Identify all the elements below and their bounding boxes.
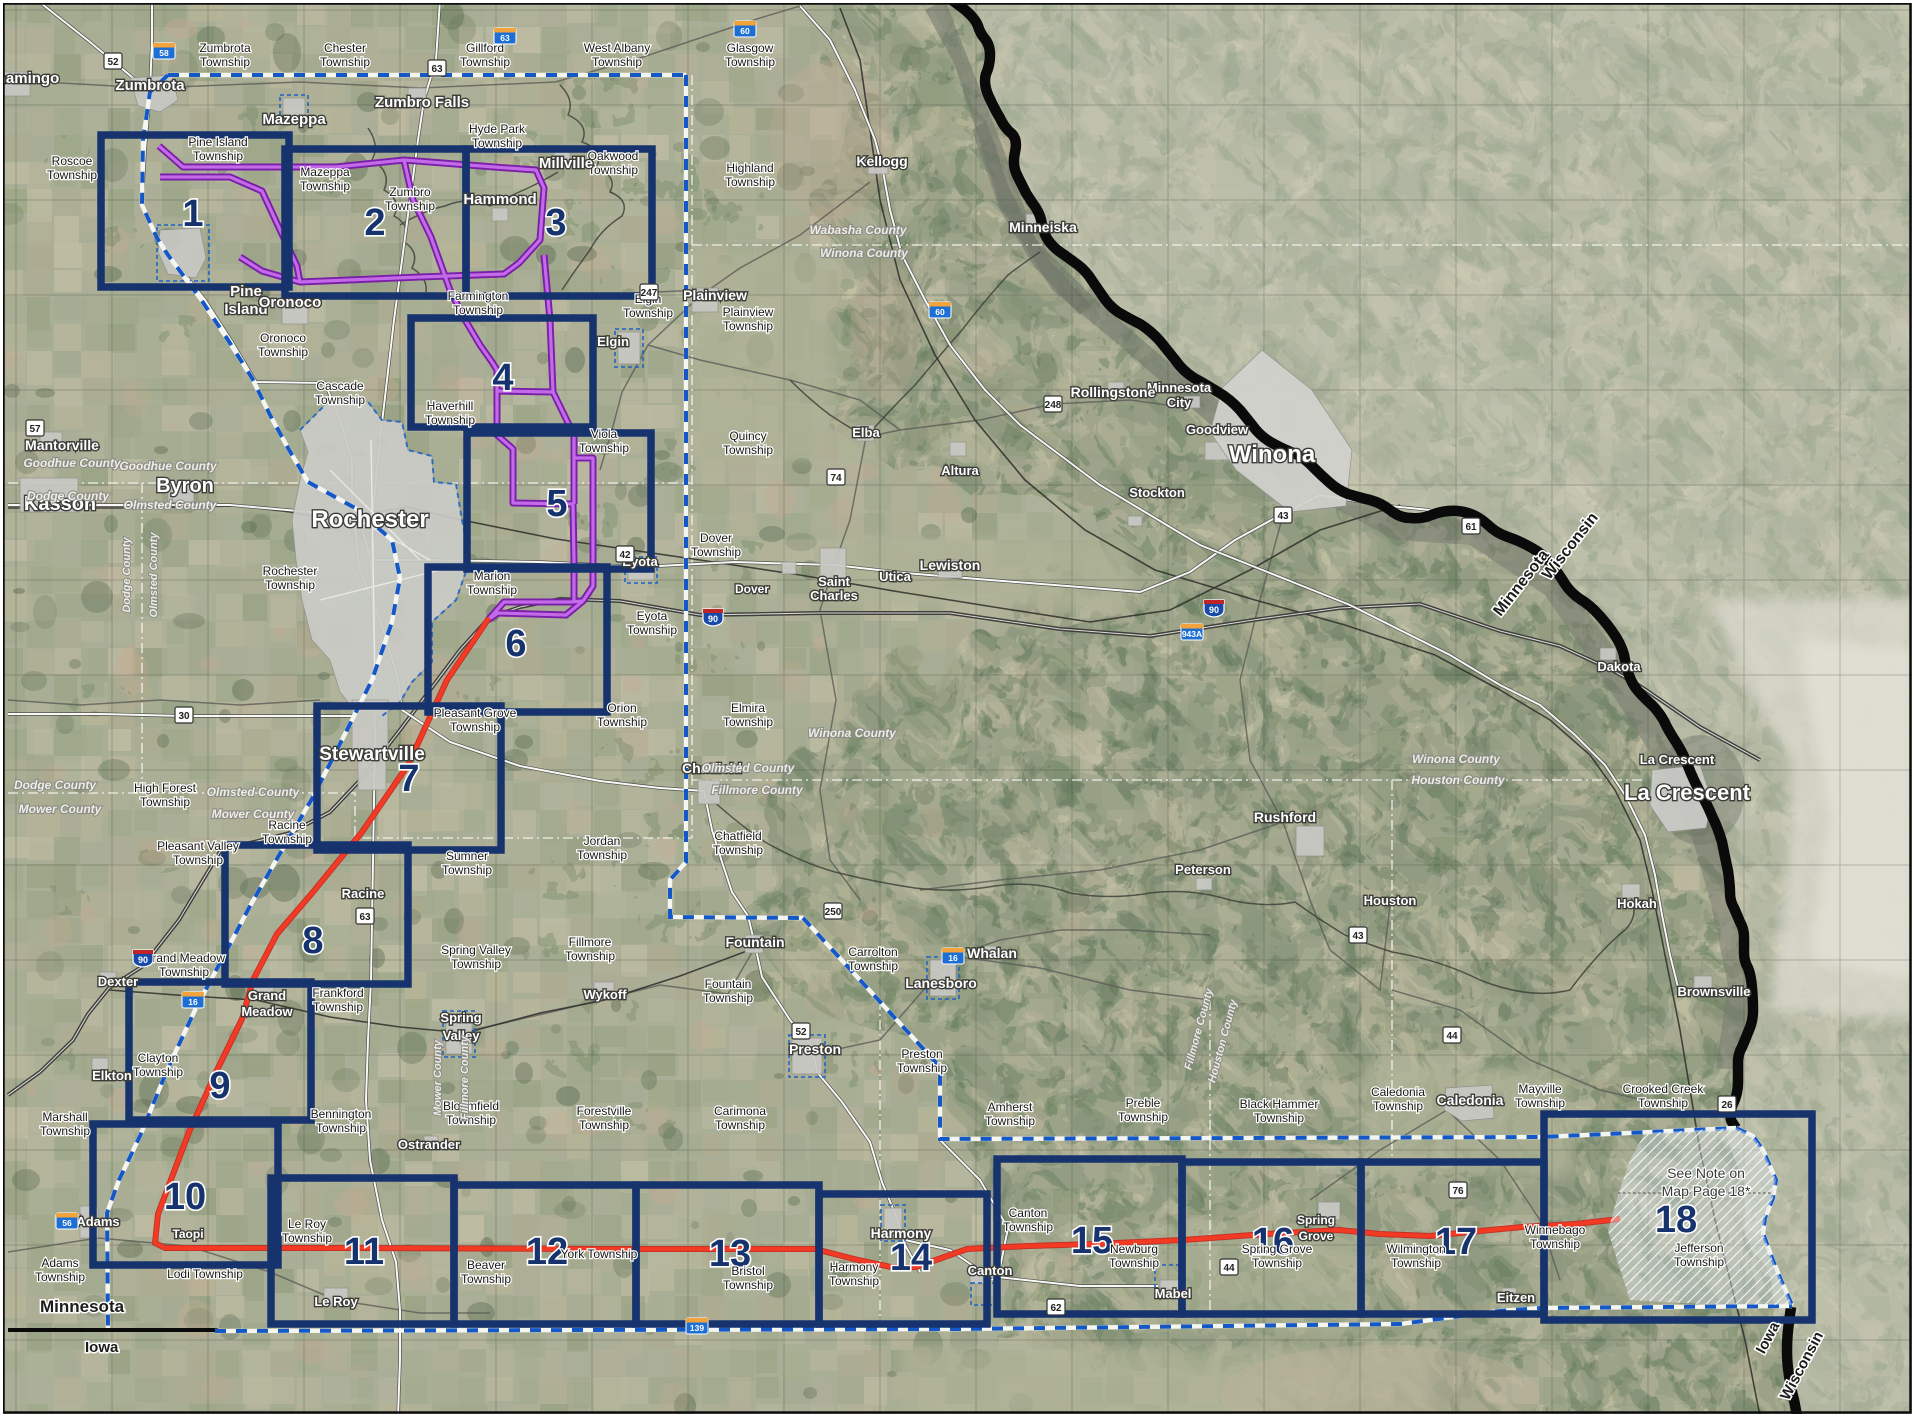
- svg-text:Mantorville: Mantorville: [25, 437, 99, 453]
- svg-text:Township: Township: [579, 441, 629, 455]
- svg-text:Hammond: Hammond: [463, 191, 536, 208]
- svg-text:Grove: Grove: [1299, 1229, 1334, 1243]
- svg-text:Houston County: Houston County: [1411, 773, 1506, 787]
- svg-text:4: 4: [492, 357, 513, 399]
- svg-text:76: 76: [1452, 1186, 1464, 1197]
- svg-text:Charles: Charles: [810, 588, 858, 603]
- svg-text:Township: Township: [1391, 1256, 1441, 1270]
- svg-text:Grand Meadow: Grand Meadow: [143, 951, 225, 965]
- svg-text:Le Roy: Le Roy: [288, 1217, 326, 1231]
- svg-text:74: 74: [830, 473, 842, 484]
- svg-text:Elgin: Elgin: [597, 334, 629, 349]
- svg-text:Mabel: Mabel: [1155, 1286, 1192, 1301]
- svg-text:Winnebago: Winnebago: [1525, 1223, 1586, 1237]
- svg-text:Township: Township: [1003, 1220, 1053, 1234]
- svg-text:Township: Township: [723, 1278, 773, 1292]
- svg-text:Township: Township: [460, 55, 510, 69]
- svg-text:Township: Township: [691, 545, 741, 559]
- svg-text:Viola: Viola: [591, 427, 618, 441]
- svg-text:139: 139: [690, 1323, 704, 1333]
- svg-text:Goodhue County: Goodhue County: [119, 459, 218, 473]
- svg-text:Amherst: Amherst: [988, 1100, 1033, 1114]
- svg-text:Mayville: Mayville: [1518, 1082, 1562, 1096]
- svg-text:Crooked Creek: Crooked Creek: [1623, 1082, 1705, 1096]
- svg-text:Township: Township: [446, 1113, 496, 1127]
- svg-text:High Forest: High Forest: [134, 781, 197, 795]
- svg-text:Adams: Adams: [76, 1214, 119, 1229]
- svg-text:Dover: Dover: [700, 531, 732, 545]
- svg-text:Spring: Spring: [1297, 1213, 1335, 1227]
- svg-text:Whalan: Whalan: [967, 945, 1017, 961]
- svg-text:Pine Island: Pine Island: [188, 135, 247, 149]
- svg-text:Iowa: Iowa: [85, 1339, 119, 1356]
- svg-text:Dodge County: Dodge County: [27, 489, 110, 503]
- svg-text:Jefferson: Jefferson: [1674, 1241, 1723, 1255]
- svg-text:Mazeppa: Mazeppa: [300, 165, 350, 179]
- svg-text:Minnesota: Minnesota: [1147, 380, 1212, 395]
- svg-text:Clayton: Clayton: [138, 1051, 179, 1065]
- svg-text:Township: Township: [442, 863, 492, 877]
- svg-text:Fillmore County: Fillmore County: [711, 783, 804, 797]
- svg-text:Township: Township: [35, 1270, 85, 1284]
- svg-text:Harmony: Harmony: [871, 1225, 932, 1241]
- svg-text:Township: Township: [723, 715, 773, 729]
- svg-text:Winona: Winona: [1229, 441, 1316, 468]
- svg-text:Wabasha County: Wabasha County: [809, 223, 907, 237]
- svg-text:Township: Township: [133, 1065, 183, 1079]
- svg-text:Oakwood: Oakwood: [588, 149, 639, 163]
- svg-text:Township: Township: [300, 179, 350, 193]
- svg-text:Township: Township: [467, 583, 517, 597]
- svg-text:Quincy: Quincy: [729, 429, 766, 443]
- svg-text:Utica: Utica: [879, 569, 912, 584]
- svg-text:250: 250: [825, 907, 842, 918]
- svg-text:248: 248: [1045, 400, 1062, 411]
- svg-text:Brownsville: Brownsville: [1678, 984, 1751, 999]
- svg-text:10: 10: [164, 1176, 206, 1218]
- svg-text:Pleasant Grove: Pleasant Grove: [434, 706, 517, 720]
- svg-text:Township: Township: [258, 345, 308, 359]
- svg-text:Hokah: Hokah: [1617, 896, 1657, 911]
- svg-text:Lewiston: Lewiston: [920, 557, 981, 573]
- svg-text:Dexter: Dexter: [98, 974, 138, 989]
- svg-text:Township: Township: [40, 1124, 90, 1138]
- svg-text:Wilmington: Wilmington: [1386, 1242, 1445, 1256]
- svg-text:Spring: Spring: [440, 1010, 481, 1025]
- svg-text:Township: Township: [723, 443, 773, 457]
- svg-text:Beaver: Beaver: [467, 1258, 505, 1272]
- svg-text:Mazeppa: Mazeppa: [262, 111, 326, 128]
- svg-text:Township: Township: [193, 149, 243, 163]
- svg-text:Zumbro Falls: Zumbro Falls: [375, 94, 469, 111]
- svg-text:Forestville: Forestville: [577, 1104, 632, 1118]
- svg-text:Township: Township: [725, 55, 775, 69]
- svg-text:Township: Township: [715, 1118, 765, 1132]
- svg-text:9: 9: [209, 1065, 230, 1107]
- svg-text:City: City: [1167, 395, 1192, 410]
- svg-text:Chatfield: Chatfield: [714, 829, 761, 843]
- svg-text:Winona County: Winona County: [1412, 752, 1501, 766]
- svg-text:Stockton: Stockton: [1129, 485, 1185, 500]
- svg-text:Township: Township: [627, 623, 677, 637]
- svg-text:Plainview: Plainview: [683, 287, 747, 303]
- svg-text:1: 1: [182, 193, 203, 235]
- svg-text:Township: Township: [1118, 1110, 1168, 1124]
- svg-text:Township: Township: [565, 949, 615, 963]
- svg-text:Township: Township: [1515, 1096, 1565, 1110]
- svg-text:Minneiska: Minneiska: [1009, 219, 1077, 235]
- svg-text:Dover: Dover: [735, 582, 769, 596]
- svg-text:Township: Township: [985, 1114, 1035, 1128]
- svg-text:Dodge County: Dodge County: [14, 778, 97, 792]
- svg-text:Racine: Racine: [342, 886, 385, 901]
- svg-text:Ostrander: Ostrander: [398, 1137, 460, 1152]
- svg-text:Township: Township: [47, 168, 97, 182]
- svg-text:Township: Township: [1530, 1237, 1580, 1251]
- svg-text:Township: Township: [450, 720, 500, 734]
- svg-text:Saint: Saint: [818, 574, 850, 589]
- svg-text:Harmony: Harmony: [830, 1260, 879, 1274]
- svg-text:Pine: Pine: [230, 283, 262, 300]
- svg-text:Meadow: Meadow: [241, 1004, 293, 1019]
- svg-text:Fountain: Fountain: [705, 977, 752, 991]
- svg-text:18: 18: [1655, 1199, 1697, 1241]
- svg-text:Adams: Adams: [41, 1256, 78, 1270]
- svg-text:60: 60: [740, 26, 750, 36]
- svg-text:Township: Township: [703, 991, 753, 1005]
- svg-text:Eyota: Eyota: [637, 609, 668, 623]
- svg-text:Township: Township: [461, 1272, 511, 1286]
- svg-text:Township: Township: [385, 199, 435, 213]
- svg-text:Township: Township: [262, 832, 312, 846]
- svg-text:Township: Township: [425, 413, 475, 427]
- svg-text:Spring Valley: Spring Valley: [441, 943, 511, 957]
- svg-text:Preble: Preble: [1126, 1096, 1161, 1110]
- svg-text:58: 58: [159, 48, 169, 58]
- svg-text:Township: Township: [472, 136, 522, 150]
- svg-text:Township: Township: [725, 175, 775, 189]
- svg-text:Zumbrota: Zumbrota: [115, 77, 185, 94]
- svg-text:Kellogg: Kellogg: [856, 153, 907, 169]
- svg-text:Houston: Houston: [1364, 893, 1417, 908]
- svg-text:La Crescent: La Crescent: [1624, 780, 1751, 805]
- svg-text:Chester: Chester: [324, 41, 366, 55]
- svg-text:Township: Township: [1674, 1255, 1724, 1269]
- svg-text:Township: Township: [159, 965, 209, 979]
- svg-text:Township: Township: [829, 1274, 879, 1288]
- svg-text:Township: Township: [713, 843, 763, 857]
- svg-text:Mower County: Mower County: [212, 807, 296, 821]
- svg-text:62: 62: [1050, 1303, 1062, 1314]
- svg-text:Goodhue County: Goodhue County: [23, 456, 122, 470]
- svg-text:Fillmore: Fillmore: [569, 935, 612, 949]
- svg-text:Winona County: Winona County: [820, 246, 909, 260]
- svg-text:Marshall: Marshall: [42, 1110, 87, 1124]
- svg-text:Altura: Altura: [941, 463, 979, 478]
- svg-text:Taopi: Taopi: [172, 1227, 203, 1241]
- svg-text:Rushford: Rushford: [1254, 809, 1316, 825]
- svg-text:Winona County: Winona County: [808, 726, 897, 740]
- svg-text:Millville: Millville: [539, 155, 593, 172]
- svg-text:Orion: Orion: [607, 701, 636, 715]
- svg-text:Le Roy: Le Roy: [314, 1294, 358, 1309]
- svg-text:Newburg: Newburg: [1110, 1242, 1158, 1256]
- svg-text:Bennington: Bennington: [311, 1107, 372, 1121]
- svg-text:Frankford: Frankford: [312, 986, 363, 1000]
- svg-text:See Note on: See Note on: [1667, 1165, 1745, 1181]
- svg-text:Township: Township: [140, 795, 190, 809]
- svg-text:Wykoff: Wykoff: [583, 987, 627, 1002]
- svg-text:44: 44: [1446, 1031, 1458, 1042]
- svg-text:Dodge County: Dodge County: [121, 537, 133, 613]
- svg-text:Township: Township: [316, 1121, 366, 1135]
- svg-text:Township: Township: [897, 1061, 947, 1075]
- svg-text:Bristol: Bristol: [731, 1264, 764, 1278]
- svg-text:Plainview: Plainview: [723, 305, 774, 319]
- svg-text:Township: Township: [173, 853, 223, 867]
- svg-text:14: 14: [890, 1237, 932, 1279]
- svg-text:Minnesota: Minnesota: [40, 1297, 125, 1316]
- svg-text:Carrolton: Carrolton: [848, 945, 897, 959]
- svg-text:Byron: Byron: [156, 475, 214, 497]
- svg-text:Lanesboro: Lanesboro: [905, 975, 977, 991]
- svg-text:Township: Township: [265, 578, 315, 592]
- svg-text:Glasgow: Glasgow: [727, 41, 774, 55]
- svg-text:Township: Township: [623, 306, 673, 320]
- svg-text:Black Hammer: Black Hammer: [1240, 1097, 1319, 1111]
- svg-text:Canton: Canton: [968, 1263, 1013, 1278]
- svg-text:Olmsted County: Olmsted County: [207, 785, 301, 799]
- svg-text:Sumner: Sumner: [446, 849, 488, 863]
- svg-text:Oronoco: Oronoco: [259, 294, 322, 311]
- svg-text:52: 52: [795, 1027, 807, 1038]
- svg-text:Township: Township: [320, 55, 370, 69]
- svg-text:Map Page 18*: Map Page 18*: [1662, 1183, 1751, 1199]
- svg-text:Township: Township: [451, 957, 501, 971]
- svg-text:943A: 943A: [1182, 629, 1202, 639]
- svg-text:Township: Township: [315, 393, 365, 407]
- svg-text:56: 56: [62, 1218, 72, 1228]
- svg-text:Township: Township: [1373, 1099, 1423, 1113]
- svg-text:42: 42: [619, 550, 631, 561]
- svg-text:Township: Township: [453, 303, 503, 317]
- svg-text:63: 63: [359, 912, 371, 923]
- svg-text:43: 43: [1352, 931, 1364, 942]
- svg-text:Olmsted County: Olmsted County: [148, 532, 160, 618]
- svg-text:Township: Township: [1109, 1256, 1159, 1270]
- svg-text:Zumbrota: Zumbrota: [199, 41, 251, 55]
- svg-text:Mower County: Mower County: [19, 802, 103, 816]
- svg-text:60: 60: [935, 307, 945, 317]
- svg-text:Elkton: Elkton: [92, 1068, 132, 1083]
- svg-text:Township: Township: [1638, 1096, 1688, 1110]
- svg-text:26: 26: [1721, 1100, 1733, 1111]
- svg-text:Olmsted County: Olmsted County: [702, 761, 796, 775]
- svg-text:3: 3: [545, 202, 566, 244]
- svg-text:Rochester: Rochester: [263, 564, 318, 578]
- svg-text:Mower County: Mower County: [432, 1039, 444, 1116]
- svg-text:Canton: Canton: [1009, 1206, 1048, 1220]
- svg-text:11: 11: [344, 1231, 384, 1273]
- svg-text:Hyde Park: Hyde Park: [469, 122, 526, 136]
- svg-text:15: 15: [1071, 1220, 1113, 1262]
- svg-text:Elmira: Elmira: [731, 701, 765, 715]
- svg-text:Oronoco: Oronoco: [260, 331, 306, 345]
- svg-text:Spring Grove: Spring Grove: [1242, 1242, 1313, 1256]
- svg-text:Township: Township: [313, 1000, 363, 1014]
- svg-text:43: 43: [1277, 511, 1289, 522]
- svg-text:Farmington: Farmington: [448, 289, 509, 303]
- svg-text:Carimona: Carimona: [714, 1104, 766, 1118]
- svg-text:Goodview: Goodview: [1186, 422, 1249, 437]
- svg-text:Haverhill: Haverhill: [427, 399, 474, 413]
- svg-text:Highland: Highland: [726, 161, 773, 175]
- svg-text:30: 30: [178, 711, 190, 722]
- svg-text:Township: Township: [848, 959, 898, 973]
- svg-text:63: 63: [431, 64, 443, 75]
- svg-text:Dakota: Dakota: [1597, 659, 1641, 674]
- svg-text:5: 5: [546, 483, 567, 525]
- svg-text:16: 16: [948, 953, 958, 963]
- svg-text:Pleasant Valley: Pleasant Valley: [157, 839, 239, 853]
- svg-text:Lodi Township: Lodi Township: [167, 1267, 243, 1281]
- svg-text:2: 2: [364, 202, 385, 244]
- svg-text:Caledonia: Caledonia: [1437, 1092, 1504, 1108]
- svg-text:York Township: York Township: [561, 1247, 638, 1261]
- svg-text:Grand: Grand: [248, 988, 286, 1003]
- svg-text:Cascade: Cascade: [316, 379, 364, 393]
- svg-text:Township: Township: [1252, 1256, 1302, 1270]
- svg-text:Rochester: Rochester: [311, 506, 428, 533]
- svg-text:Peterson: Peterson: [1175, 862, 1231, 877]
- svg-text:Rollingstone: Rollingstone: [1071, 384, 1156, 400]
- svg-text:61: 61: [1465, 522, 1477, 533]
- svg-text:247: 247: [641, 288, 658, 299]
- svg-text:57: 57: [29, 424, 41, 435]
- svg-text:52: 52: [107, 57, 119, 68]
- svg-text:Eitzen: Eitzen: [1497, 1290, 1535, 1305]
- svg-text:16: 16: [188, 997, 198, 1007]
- svg-text:Zumbro: Zumbro: [389, 185, 431, 199]
- svg-text:8: 8: [302, 920, 323, 962]
- svg-text:Fountain: Fountain: [725, 934, 784, 950]
- svg-text:Township: Township: [592, 55, 642, 69]
- svg-text:Township: Township: [1254, 1111, 1304, 1125]
- svg-text:Preston: Preston: [901, 1047, 942, 1061]
- svg-text:Township: Township: [597, 715, 647, 729]
- svg-text:Roscoe: Roscoe: [52, 154, 93, 168]
- svg-text:Marion: Marion: [474, 569, 511, 583]
- svg-text:Fillmore County: Fillmore County: [459, 1035, 471, 1120]
- svg-text:Jordan: Jordan: [584, 834, 621, 848]
- svg-text:Preston: Preston: [789, 1041, 841, 1057]
- svg-text:Township: Township: [723, 319, 773, 333]
- svg-text:Caledonia: Caledonia: [1371, 1085, 1425, 1099]
- svg-text:Olmsted County: Olmsted County: [124, 498, 218, 512]
- svg-text:Stewartville: Stewartville: [319, 744, 425, 765]
- svg-text:La Crescent: La Crescent: [1640, 752, 1715, 767]
- svg-text:namingo: namingo: [0, 70, 59, 87]
- svg-text:Bloomfield: Bloomfield: [443, 1099, 499, 1113]
- svg-text:Elba: Elba: [852, 425, 880, 440]
- svg-text:63: 63: [500, 33, 510, 43]
- svg-text:Township: Township: [200, 55, 250, 69]
- svg-text:West Albany: West Albany: [584, 41, 650, 55]
- svg-text:6: 6: [505, 623, 526, 665]
- svg-text:44: 44: [1223, 1263, 1235, 1274]
- svg-text:90: 90: [1209, 605, 1219, 615]
- svg-text:90: 90: [138, 955, 148, 965]
- svg-text:90: 90: [708, 614, 718, 624]
- svg-text:Township: Township: [579, 1118, 629, 1132]
- svg-text:Township: Township: [282, 1231, 332, 1245]
- svg-text:Township: Township: [588, 163, 638, 177]
- svg-text:Township: Township: [577, 848, 627, 862]
